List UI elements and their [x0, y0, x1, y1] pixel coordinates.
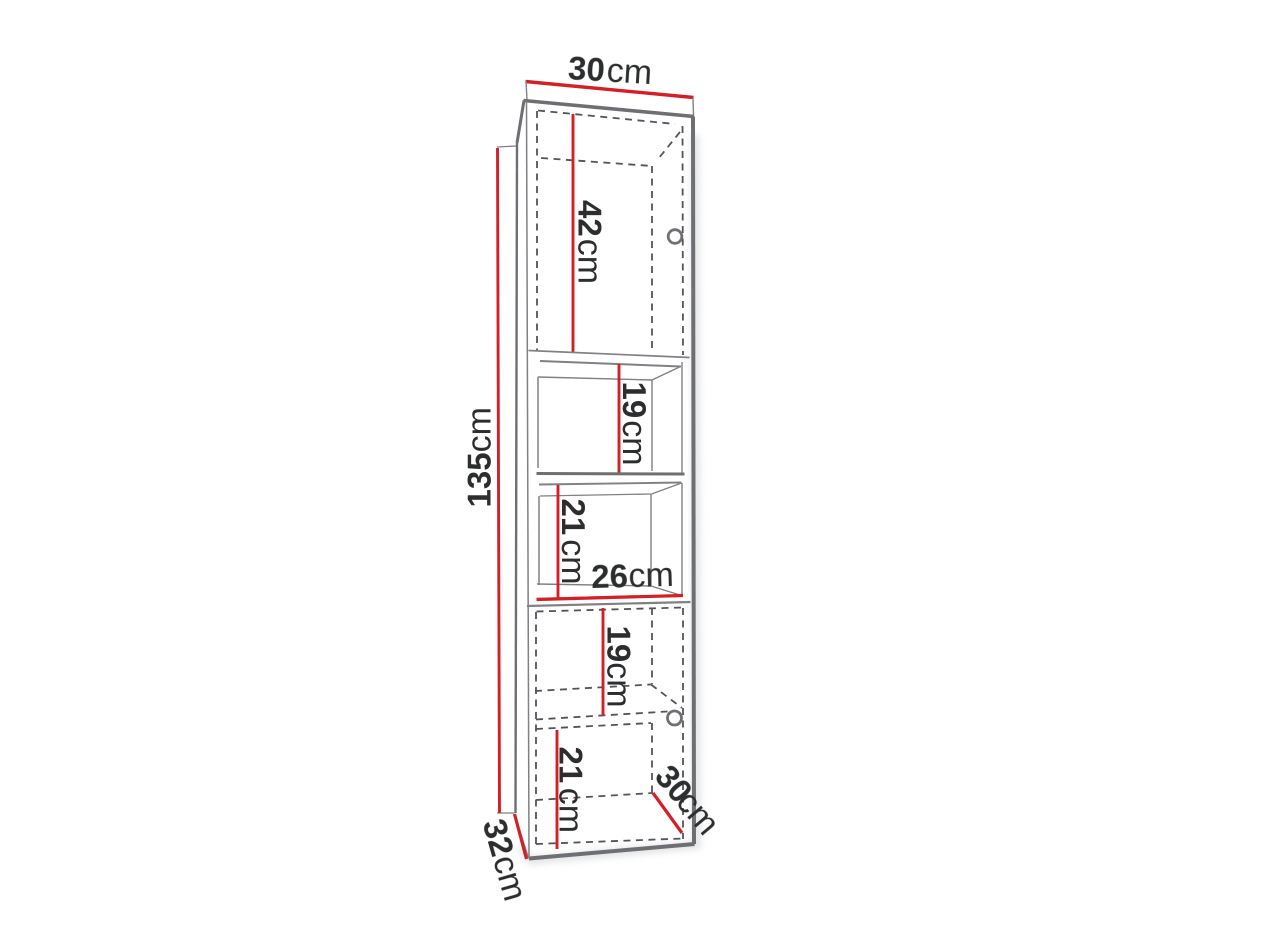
svg-text:135cm: 135cm	[461, 407, 499, 507]
svg-text:26cm: 26cm	[591, 556, 675, 596]
svg-text:42cm: 42cm	[571, 200, 609, 284]
svg-text:21cm: 21cm	[552, 747, 590, 834]
svg-text:19cm: 19cm	[615, 382, 653, 466]
svg-text:30cm: 30cm	[567, 49, 653, 92]
svg-text:19cm: 19cm	[600, 626, 638, 708]
svg-text:21cm: 21cm	[554, 499, 592, 585]
